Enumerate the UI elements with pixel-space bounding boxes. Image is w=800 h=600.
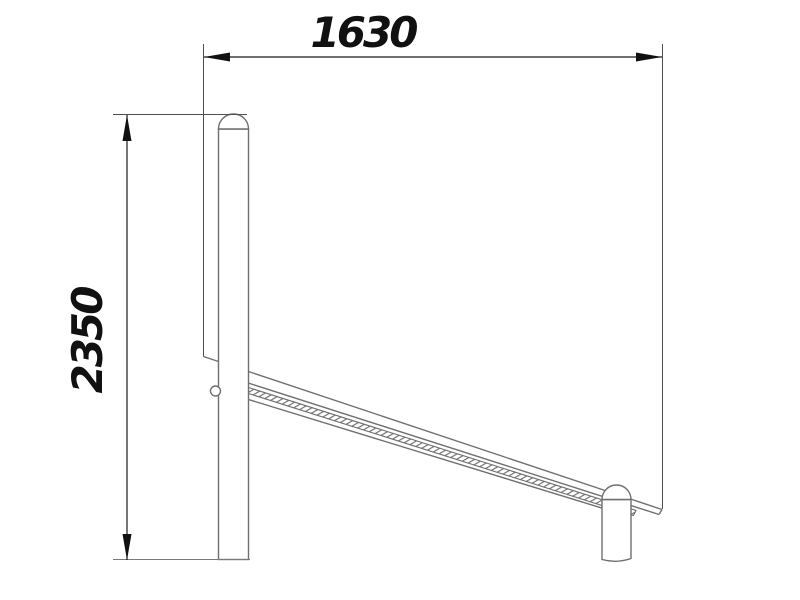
board-right-end-edge [659,510,662,515]
board-second-edge-line [220,374,659,515]
board-hatched-strip [249,388,637,516]
post-left-body [219,129,249,560]
drawing-canvas: 1630 2350 [0,0,800,600]
arrowhead-left-icon [204,53,230,62]
arrowhead-up-icon [123,115,132,141]
post-right-cap [602,485,631,500]
post-left-cap [219,114,249,129]
arrowhead-right-icon [636,53,662,62]
attachment-ring [211,386,221,396]
inclined-board [204,357,663,518]
technical-drawing: 1630 2350 [0,0,800,600]
board-top-edge-line [204,357,663,510]
post-left [211,114,249,560]
post-right-body [602,500,631,562]
arrowhead-down-icon [123,534,132,560]
board-bottom-edge-line [249,400,632,518]
dimension-width: 1630 [204,8,663,509]
post-right [602,485,631,561]
height-dimension-label: 2350 [63,287,112,394]
width-dimension-label: 1630 [311,8,418,57]
